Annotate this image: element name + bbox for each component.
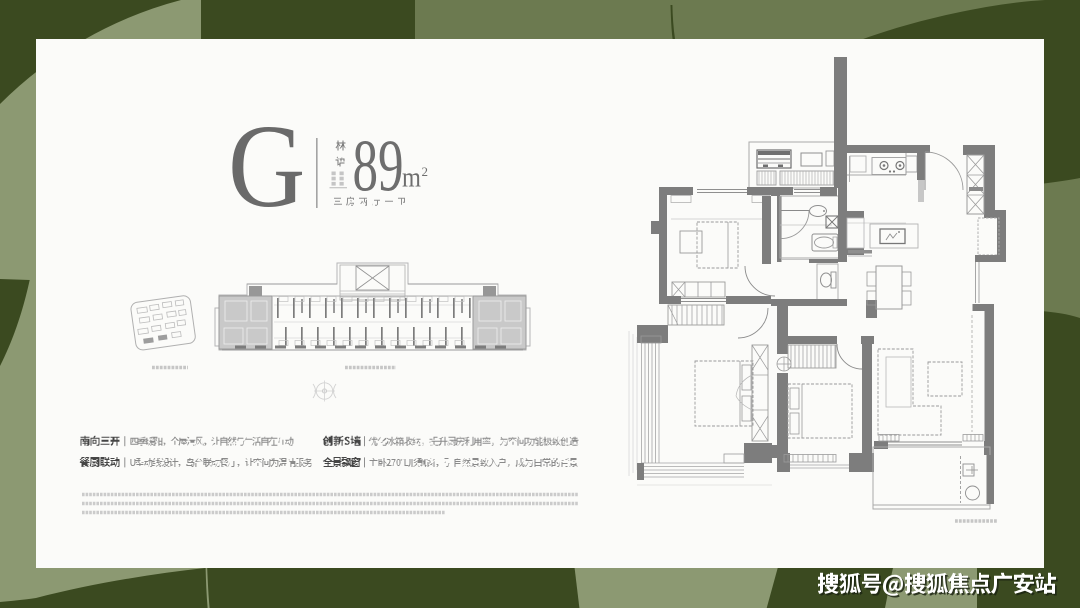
svg-text:G: G	[228, 101, 305, 232]
svg-text:89: 89	[353, 124, 404, 207]
svg-text:m: m	[402, 162, 421, 193]
svg-text:2: 2	[422, 164, 429, 179]
